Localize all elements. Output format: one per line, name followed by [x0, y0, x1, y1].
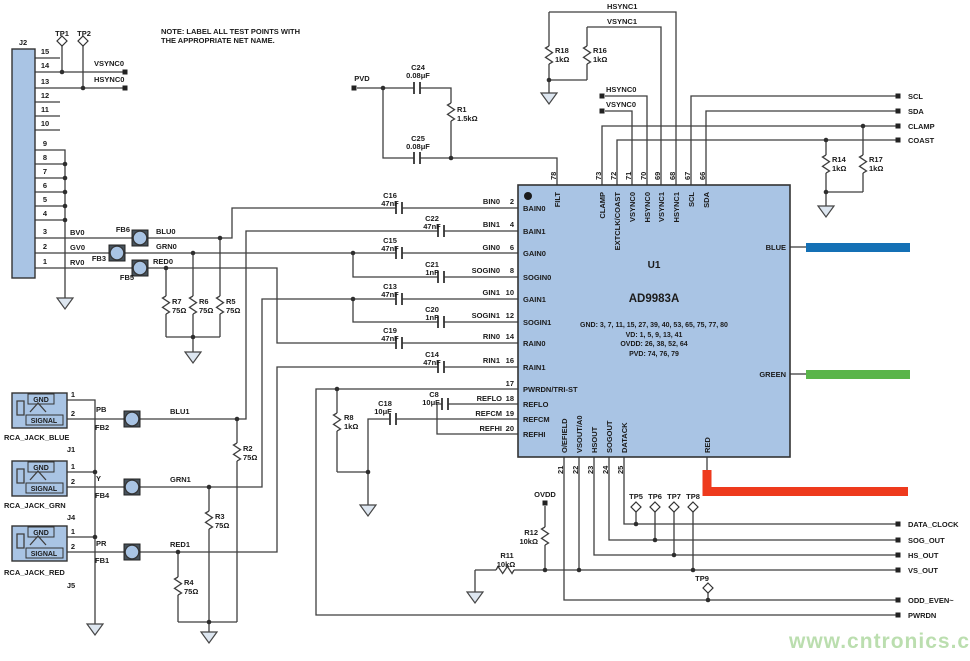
- c15-val: 47nF: [381, 244, 399, 253]
- r16-val: 1kΩ: [593, 55, 607, 64]
- net-hsync0: HSYNC0: [94, 75, 124, 84]
- svg-text:VSOUT/A0: VSOUT/A0: [575, 415, 584, 453]
- svg-text:FILT: FILT: [553, 192, 562, 208]
- svg-text:69: 69: [653, 172, 662, 180]
- j2-pin: 1: [43, 257, 47, 266]
- port-sog-out: SOG_OUT: [908, 536, 945, 545]
- j2-pin: 13: [41, 77, 49, 86]
- r1-ref: R1: [457, 105, 467, 114]
- port-odd-even: ODD_EVEN~: [908, 596, 954, 605]
- svg-text:67: 67: [683, 172, 692, 180]
- pin1-marker-icon: [524, 192, 532, 200]
- svg-text:2: 2: [71, 542, 75, 551]
- bead-fb5: [132, 260, 148, 276]
- port-scl: SCL: [908, 92, 923, 101]
- ovdd-label: OVDD: [534, 490, 556, 499]
- c14-val: 47nF: [423, 358, 441, 367]
- c8-val: 10μF: [422, 398, 440, 407]
- note-line1: NOTE: LABEL ALL TEST POINTS WITH: [161, 27, 300, 36]
- svg-text:72: 72: [609, 172, 618, 180]
- svg-text:CLAMP: CLAMP: [598, 192, 607, 219]
- chip-pin-blue: BLUE: [766, 243, 786, 252]
- c20-val: 1nF: [425, 313, 439, 322]
- tp8-label: TP8: [686, 492, 700, 501]
- c19-val: 47nF: [381, 334, 399, 343]
- j2-pin: 3: [43, 227, 47, 236]
- schematic-svg: J2 15 14 13 12 11 10 9 8 7 6 5 4 3 2 1 T…: [0, 0, 970, 656]
- j5-name: RCA_JACK_RED: [4, 568, 65, 577]
- net-reflo: REFLO: [477, 394, 503, 403]
- svg-text:PWRDN/TRI-ST: PWRDN/TRI-ST: [523, 385, 578, 394]
- net-rin0: RIN0: [483, 332, 500, 341]
- svg-text:BAIN1: BAIN1: [523, 227, 546, 236]
- svg-text:VSYNC0: VSYNC0: [628, 192, 637, 222]
- r14-ref: R14: [832, 155, 847, 164]
- bead-fb2: [124, 411, 140, 427]
- c24-val: 0.08μF: [406, 71, 430, 80]
- svg-text:12: 12: [506, 311, 514, 320]
- c13-val: 47nF: [381, 290, 399, 299]
- tp7-label: TP7: [667, 492, 681, 501]
- svg-text:REFHI: REFHI: [523, 430, 546, 439]
- net-bin1: BIN1: [483, 220, 500, 229]
- chip-power-ovdd: OVDD: 26, 38, 52, 64: [620, 341, 687, 348]
- svg-text:78: 78: [549, 172, 558, 180]
- svg-text:RAIN1: RAIN1: [523, 363, 546, 372]
- svg-text:1: 1: [71, 527, 75, 536]
- svg-text:REFLO: REFLO: [523, 400, 549, 409]
- j2-pin: 14: [41, 61, 50, 70]
- r17-ref: R17: [869, 155, 883, 164]
- r5-val: 75Ω: [226, 306, 240, 315]
- svg-text:GAIN0: GAIN0: [523, 249, 546, 258]
- pvd-label: PVD: [354, 74, 370, 83]
- tp5-label: TP5: [629, 492, 643, 501]
- port-coast: COAST: [908, 136, 935, 145]
- svg-text:23: 23: [586, 466, 595, 474]
- svg-text:GND: GND: [33, 397, 49, 404]
- fb6-label: FB6: [116, 225, 130, 234]
- net-grn0: GRN0: [156, 242, 177, 251]
- r12-val: 10kΩ: [519, 537, 538, 546]
- svg-text:VSYNC1: VSYNC1: [657, 192, 666, 222]
- net-bin0: BIN0: [483, 197, 500, 206]
- blue-bar: [806, 243, 910, 252]
- svg-text:SOGIN1: SOGIN1: [523, 318, 551, 327]
- j4-ref: J4: [67, 513, 76, 522]
- fb3-label: FB3: [92, 254, 106, 263]
- port-data-clock: DATA_CLOCK: [908, 520, 959, 529]
- r4-val: 75Ω: [184, 587, 198, 596]
- r11-val: 10kΩ: [497, 560, 516, 569]
- svg-text:SOGOUT: SOGOUT: [605, 420, 614, 453]
- r3-ref: R3: [215, 512, 225, 521]
- j1-name: RCA_JACK_BLUE: [4, 433, 69, 442]
- c22-val: 47nF: [423, 222, 441, 231]
- svg-text:21: 21: [556, 466, 565, 474]
- j2-pin: 8: [43, 153, 47, 162]
- r7-ref: R7: [172, 297, 182, 306]
- net-gin1: GIN1: [482, 288, 500, 297]
- c18-val: 10μF: [374, 407, 392, 416]
- svg-text:GND: GND: [33, 530, 49, 537]
- svg-text:19: 19: [506, 409, 514, 418]
- svg-text:6: 6: [510, 243, 514, 252]
- svg-text:73: 73: [594, 172, 603, 180]
- svg-text:14: 14: [506, 332, 515, 341]
- j2-ref: J2: [19, 38, 27, 47]
- r2-ref: R2: [243, 444, 253, 453]
- bead-fb1: [124, 544, 140, 560]
- net-pr: PR: [96, 539, 107, 548]
- bead-fb4: [124, 479, 140, 495]
- port-vs-out: VS_OUT: [908, 566, 938, 575]
- c25-val: 0.08μF: [406, 142, 430, 151]
- j2-pin: 12: [41, 91, 49, 100]
- svg-text:2: 2: [71, 477, 75, 486]
- r18-val: 1kΩ: [555, 55, 569, 64]
- svg-text:SDA: SDA: [702, 191, 711, 207]
- fb1-label: FB1: [95, 556, 109, 565]
- net-grn1: GRN1: [170, 475, 191, 484]
- net-bv0: BV0: [70, 228, 85, 237]
- svg-text:8: 8: [510, 266, 514, 275]
- chip-power-pvd: PVD: 74, 76, 79: [629, 351, 679, 358]
- svg-text:GND: GND: [33, 465, 49, 472]
- net-red1: RED1: [170, 540, 190, 549]
- svg-text:GAIN1: GAIN1: [523, 295, 546, 304]
- svg-text:SIGNAL: SIGNAL: [31, 418, 58, 425]
- chip-part: AD9983A: [629, 293, 680, 305]
- r18-ref: R18: [555, 46, 569, 55]
- net-vsync0: VSYNC0: [94, 59, 124, 68]
- svg-text:2: 2: [510, 197, 514, 206]
- svg-text:24: 24: [601, 465, 610, 474]
- schematic-canvas: J2 15 14 13 12 11 10 9 8 7 6 5 4 3 2 1 T…: [0, 0, 970, 656]
- svg-text:10: 10: [506, 288, 514, 297]
- background: [0, 0, 970, 656]
- r5-ref: R5: [226, 297, 236, 306]
- fb5-label: FB5: [120, 273, 134, 282]
- r2-val: 75Ω: [243, 453, 257, 462]
- net-gin0: GIN0: [482, 243, 500, 252]
- net-hsync0-top: HSYNC0: [606, 85, 636, 94]
- svg-text:SCL: SCL: [687, 192, 696, 207]
- port-hs-out: HS_OUT: [908, 551, 939, 560]
- chip-ref: U1: [648, 260, 661, 271]
- r4-ref: R4: [184, 578, 194, 587]
- svg-text:20: 20: [506, 424, 514, 433]
- net-red0: RED0: [153, 257, 173, 266]
- fb2-label: FB2: [95, 423, 109, 432]
- net-rin1: RIN1: [483, 356, 500, 365]
- svg-text:BAIN0: BAIN0: [523, 204, 546, 213]
- svg-text:22: 22: [571, 466, 580, 474]
- j1-ref: J1: [67, 445, 75, 454]
- net-sogin0: SOGIN0: [472, 266, 500, 275]
- net-pb: PB: [96, 405, 107, 414]
- j2-pin: 10: [41, 119, 49, 128]
- green-bar: [806, 370, 910, 379]
- svg-text:DATACK: DATACK: [620, 422, 629, 453]
- svg-text:SIGNAL: SIGNAL: [31, 551, 58, 558]
- svg-text:SIGNAL: SIGNAL: [31, 486, 58, 493]
- svg-text:66: 66: [698, 172, 707, 180]
- chip-pin-green: GREEN: [759, 370, 786, 379]
- j5-ref: J5: [67, 581, 75, 590]
- net-refcm: REFCM: [475, 409, 502, 418]
- j2-pin: 15: [41, 47, 49, 56]
- c16-val: 47nF: [381, 199, 399, 208]
- j2-pin: 5: [43, 195, 47, 204]
- r1-val: 1.5kΩ: [457, 114, 478, 123]
- chip-power-gnd: GND: 3, 7, 11, 15, 27, 39, 40, 53, 65, 7…: [580, 322, 728, 329]
- r6-ref: R6: [199, 297, 209, 306]
- port-sda: SDA: [908, 107, 924, 116]
- svg-text:68: 68: [668, 172, 677, 180]
- svg-text:O/EFIELD: O/EFIELD: [560, 418, 569, 453]
- chip-u1: U1 AD9983A GND: 3, 7, 11, 15, 27, 39, 40…: [506, 172, 790, 474]
- svg-text:16: 16: [506, 356, 514, 365]
- j2-pin: 7: [43, 167, 47, 176]
- svg-text:RAIN0: RAIN0: [523, 339, 546, 348]
- svg-text:71: 71: [624, 172, 633, 180]
- r16-ref: R16: [593, 46, 607, 55]
- svg-text:HSYNC1: HSYNC1: [672, 192, 681, 222]
- j2-pin: 6: [43, 181, 47, 190]
- net-blu0: BLU0: [156, 227, 176, 236]
- net-vsync0-top: VSYNC0: [606, 100, 636, 109]
- net-vsync1: VSYNC1: [607, 17, 637, 26]
- j2-pin: 11: [41, 105, 49, 114]
- svg-text:70: 70: [639, 172, 648, 180]
- net-y: Y: [96, 474, 101, 483]
- r12-ref: R12: [524, 528, 538, 537]
- j2-pin: 9: [43, 139, 47, 148]
- tp6-label: TP6: [648, 492, 662, 501]
- j2-pin: 2: [43, 242, 47, 251]
- net-refhi: REFHI: [480, 424, 503, 433]
- net-sogin1: SOGIN1: [472, 311, 500, 320]
- net-rv0: RV0: [70, 258, 84, 267]
- r8-ref: R8: [344, 413, 354, 422]
- svg-text:SOGIN0: SOGIN0: [523, 273, 551, 282]
- chip-body: [518, 185, 790, 457]
- chip-power-vd: VD: 1, 5, 9, 13, 41: [626, 332, 683, 339]
- bead-fb6: [132, 230, 148, 246]
- net-blu1: BLU1: [170, 407, 190, 416]
- svg-text:2: 2: [71, 409, 75, 418]
- port-clamp: CLAMP: [908, 122, 935, 131]
- svg-text:1: 1: [71, 390, 75, 399]
- svg-text:EXTCLK/COAST: EXTCLK/COAST: [613, 192, 622, 251]
- tp9-label: TP9: [695, 574, 709, 583]
- r11-ref: R11: [500, 551, 513, 560]
- r3-val: 75Ω: [215, 521, 229, 530]
- net-hsync1: HSYNC1: [607, 2, 637, 11]
- svg-text:25: 25: [616, 466, 625, 474]
- note-line2: THE APPROPRIATE NET NAME.: [161, 36, 275, 45]
- chip-pin-red: RED: [703, 437, 712, 453]
- net-gv0: GV0: [70, 243, 85, 252]
- svg-text:REFCM: REFCM: [523, 415, 550, 424]
- j4-name: RCA_JACK_GRN: [4, 501, 66, 510]
- c21-val: 1nF: [425, 268, 439, 277]
- svg-text:1: 1: [71, 462, 75, 471]
- r6-val: 75Ω: [199, 306, 213, 315]
- r7-val: 75Ω: [172, 306, 186, 315]
- svg-text:HSYNC0: HSYNC0: [643, 192, 652, 222]
- watermark: www.cntronics.com: [788, 630, 970, 653]
- fb4-label: FB4: [95, 491, 110, 500]
- port-pwrdn: PWRDN: [908, 611, 936, 620]
- bead-fb3: [109, 245, 125, 261]
- r17-val: 1kΩ: [869, 164, 883, 173]
- r8-val: 1kΩ: [344, 422, 358, 431]
- svg-text:17: 17: [506, 379, 514, 388]
- svg-text:18: 18: [506, 394, 514, 403]
- svg-text:HSOUT: HSOUT: [590, 426, 599, 453]
- r14-val: 1kΩ: [832, 164, 846, 173]
